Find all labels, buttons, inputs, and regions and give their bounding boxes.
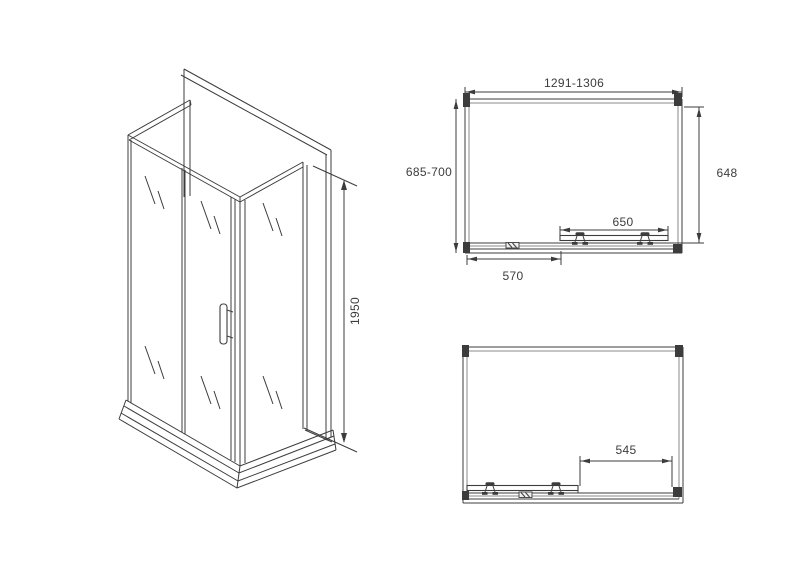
dim-depth-range-label: 685-700 (406, 165, 452, 179)
dim-height-label: 1950 (348, 297, 362, 325)
left-section-dimension: 570 (467, 251, 561, 283)
dim-door-width-label: 650 (613, 215, 634, 229)
technical-drawing-canvas: 1950 (0, 0, 800, 566)
height-dimension: 1950 (304, 166, 362, 452)
wall-profile-markers (463, 93, 682, 253)
opening-width-dimension: 545 (580, 443, 672, 487)
dim-left-section-label: 570 (503, 269, 524, 283)
dim-opening-width-label: 545 (616, 443, 637, 457)
top-plan-view: 1291-1306 685-700 648 650 (406, 76, 738, 283)
top-frame (128, 100, 303, 202)
track-guide (506, 243, 519, 249)
glass-shine-marks (145, 176, 282, 409)
wall-profile-markers (462, 345, 683, 500)
track-guide (519, 492, 532, 498)
back-wall-panel (181, 69, 332, 442)
side-depth-dimension: 648 (671, 107, 737, 243)
drawing-svg: 1950 (0, 0, 800, 566)
door-width-dimension: 650 (560, 215, 668, 235)
bottom-plan-view: 545 (462, 345, 683, 503)
plan-frame (463, 347, 683, 503)
width-dimension: 1291-1306 (465, 76, 682, 97)
isometric-view: 1950 (119, 69, 362, 488)
dim-width-range-label: 1291-1306 (544, 76, 604, 90)
dim-side-depth-label: 648 (717, 166, 738, 180)
depth-dimension: 685-700 (406, 99, 458, 253)
